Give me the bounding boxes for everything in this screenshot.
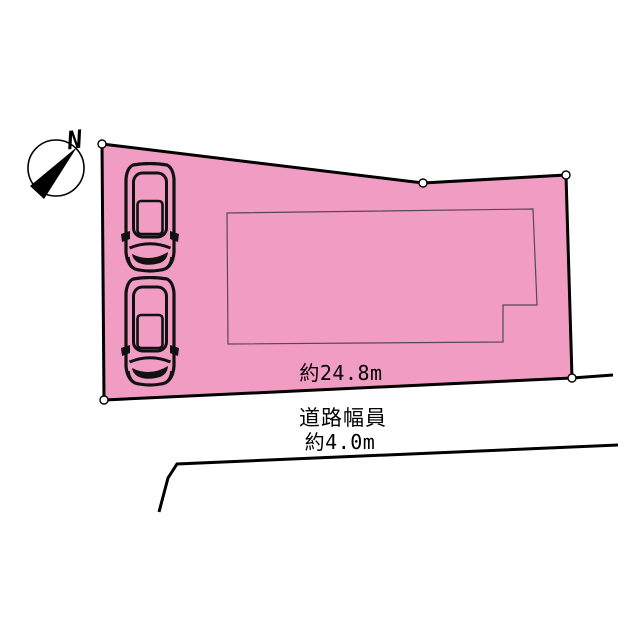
compass: N [28, 124, 85, 199]
site-plan-drawing: N 約24.8m 道路幅員 約4.0m [0, 0, 640, 640]
boundary-point-marker [98, 140, 106, 148]
boundary-point-marker [419, 179, 427, 187]
parcel-geometry-layer [98, 140, 618, 512]
road-far-edge [159, 445, 618, 512]
frontage-dimension-label: 約24.8m [299, 361, 382, 385]
boundary-point-marker [562, 171, 570, 179]
road-near-edge [572, 375, 613, 378]
road-name-label: 道路幅員 [299, 406, 387, 430]
road-width-label: 約4.0m [305, 430, 376, 454]
boundary-point-marker [100, 396, 108, 404]
site-plan: N 約24.8m 道路幅員 約4.0m [0, 0, 640, 640]
boundary-point-marker [568, 374, 576, 382]
